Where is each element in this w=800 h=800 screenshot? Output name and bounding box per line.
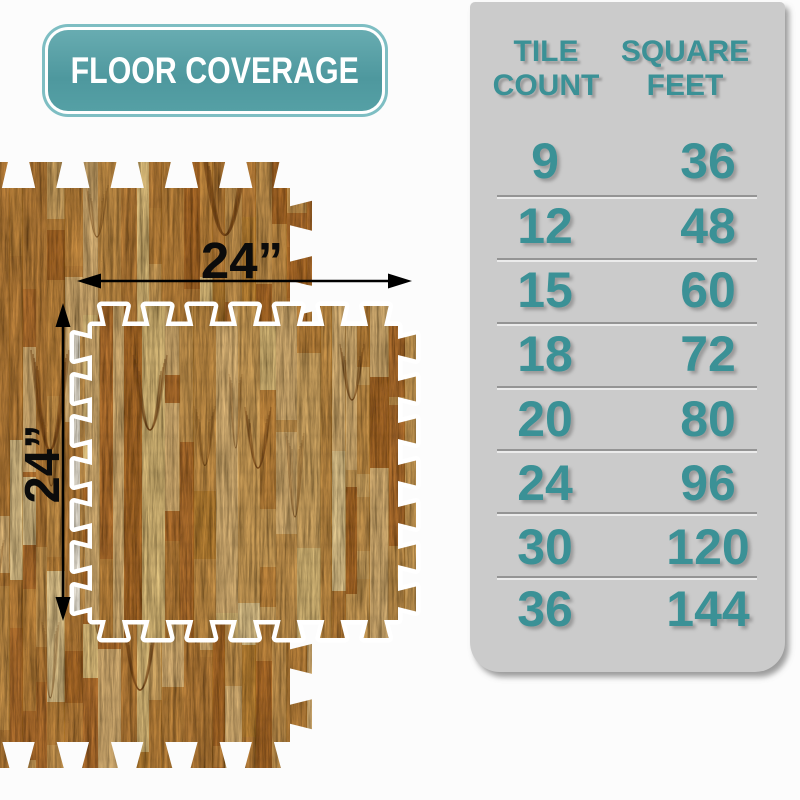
svg-text:24”: 24” [201, 232, 283, 289]
svg-text:24”: 24” [16, 424, 70, 503]
